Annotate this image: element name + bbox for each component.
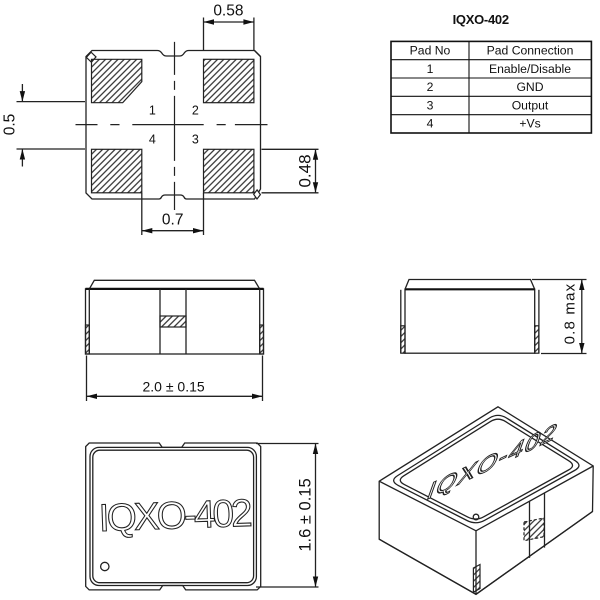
svg-text:0.5: 0.5 [2,114,19,136]
svg-text:1: 1 [427,62,434,76]
svg-text:4: 4 [427,117,434,131]
svg-text:Pad No: Pad No [410,44,451,58]
svg-text:IQXO-402: IQXO-402 [98,492,252,540]
svg-text:2: 2 [427,80,434,94]
svg-text:0.7: 0.7 [162,212,184,229]
svg-text:0.58: 0.58 [213,3,243,20]
svg-text:IQXO-402: IQXO-402 [453,12,509,27]
svg-text:1.6 ± 0.15: 1.6 ± 0.15 [296,478,314,551]
svg-text:1: 1 [149,104,156,118]
svg-text:4: 4 [149,133,156,147]
svg-text:3: 3 [427,98,434,112]
svg-text:Enable/Disable: Enable/Disable [489,62,571,76]
svg-text:0.8 max: 0.8 max [561,283,578,345]
svg-text:3: 3 [192,133,199,147]
svg-text:+Vs: +Vs [519,117,540,131]
svg-text:Output: Output [512,98,549,112]
svg-text:0.48: 0.48 [296,154,315,187]
svg-text:2: 2 [192,104,199,118]
svg-text:Pad Connection: Pad Connection [487,44,574,58]
svg-text:GND: GND [516,80,543,94]
svg-text:2.0 ± 0.15: 2.0 ± 0.15 [143,379,205,395]
